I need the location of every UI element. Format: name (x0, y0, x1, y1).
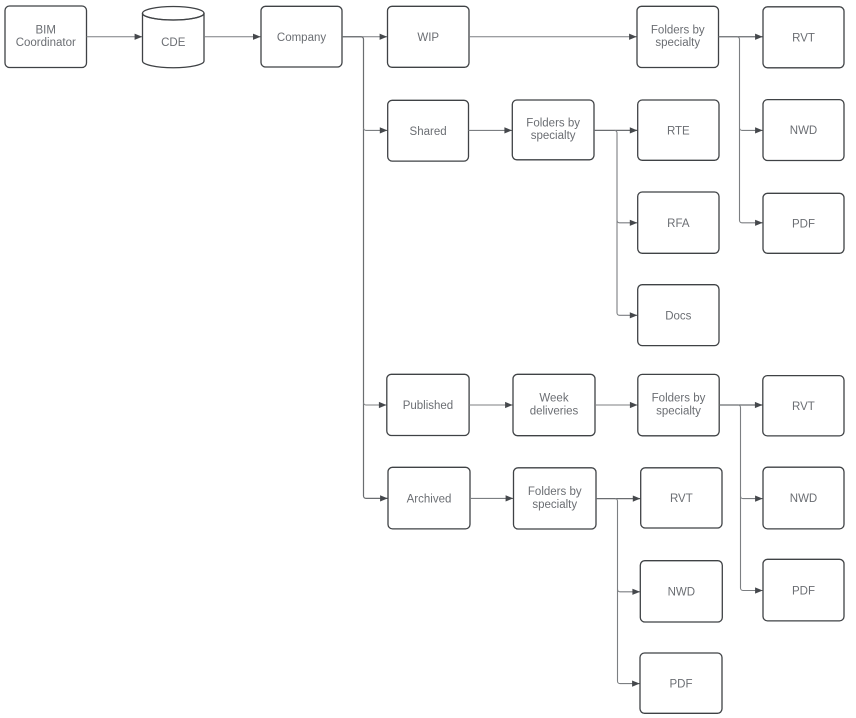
svg-text:specialty: specialty (531, 130, 576, 142)
svg-text:PDF: PDF (670, 678, 693, 690)
svg-text:Folders by: Folders by (652, 393, 706, 405)
svg-text:RVT: RVT (792, 401, 815, 413)
svg-text:NWD: NWD (668, 587, 695, 599)
svg-text:Docs: Docs (665, 310, 691, 322)
svg-text:NWD: NWD (790, 493, 817, 505)
svg-text:PDF: PDF (792, 585, 815, 597)
svg-text:RFA: RFA (667, 218, 690, 230)
svg-text:RTE: RTE (667, 125, 690, 137)
svg-text:specialty: specialty (655, 37, 700, 49)
svg-text:Published: Published (403, 400, 454, 412)
svg-text:NWD: NWD (790, 125, 817, 137)
svg-text:deliveries: deliveries (530, 405, 579, 417)
svg-text:Company: Company (277, 32, 326, 44)
svg-text:specialty: specialty (532, 499, 577, 511)
svg-text:BIM: BIM (36, 24, 56, 36)
svg-text:Archived: Archived (407, 494, 452, 506)
svg-text:RVT: RVT (792, 33, 815, 45)
svg-text:Folders by: Folders by (651, 25, 705, 37)
svg-text:Folders by: Folders by (528, 486, 582, 498)
svg-text:Coordinator: Coordinator (16, 37, 76, 49)
svg-text:specialty: specialty (656, 405, 701, 417)
svg-text:CDE: CDE (161, 37, 186, 49)
svg-text:WIP: WIP (417, 32, 439, 44)
svg-text:Folders by: Folders by (526, 118, 580, 130)
svg-text:RVT: RVT (670, 493, 693, 505)
svg-text:Week: Week (539, 393, 568, 405)
svg-text:Shared: Shared (410, 126, 447, 138)
svg-text:PDF: PDF (792, 219, 815, 231)
